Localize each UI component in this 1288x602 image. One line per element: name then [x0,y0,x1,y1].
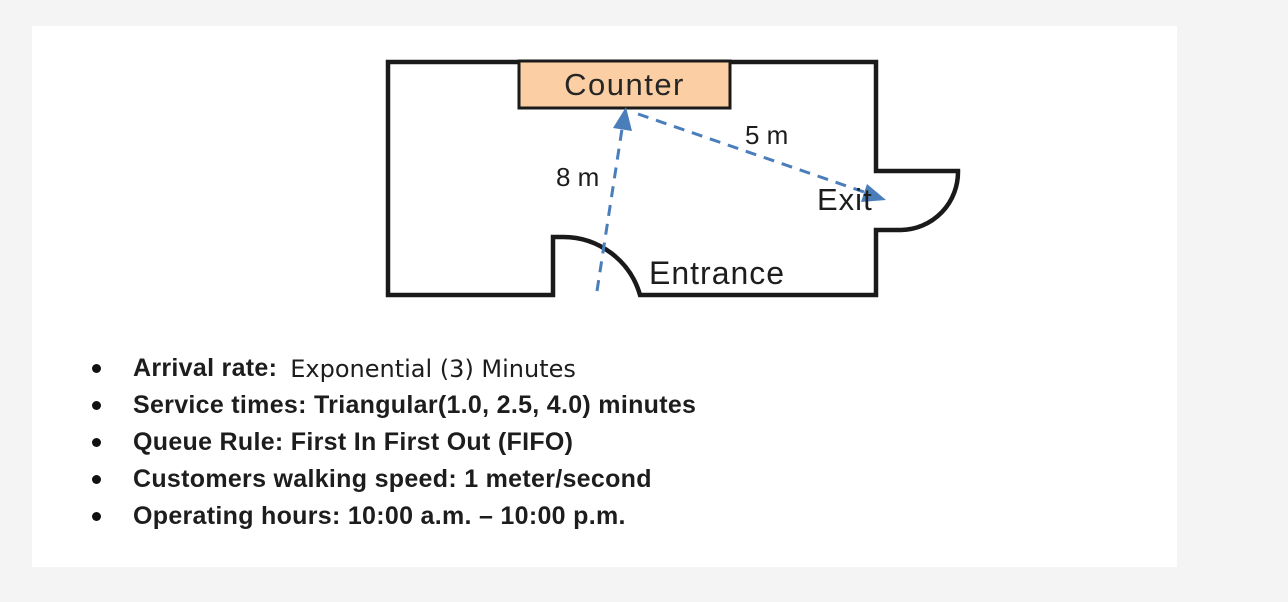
bullet-dot [92,401,101,410]
simulation-specs-list: Arrival rate:Exponential (3) Minutes Ser… [88,350,696,535]
list-item: Operating hours: 10:00 a.m. – 10:00 p.m. [88,498,696,535]
spec-arrival-label: Arrival rate: [133,354,277,382]
distance-8m-label: 8 m [556,164,599,190]
list-item: Customers walking speed: 1 meter/second [88,461,696,498]
arrowhead-at-counter [613,107,632,131]
list-item: Service times: Triangular(1.0, 2.5, 4.0)… [88,387,696,424]
spec-arrival-value: Exponential (3) Minutes [290,355,576,383]
spec-queue-rule: Queue Rule: First In First Out (FIFO) [133,428,573,456]
bullet-dot [92,475,101,484]
list-item: Arrival rate:Exponential (3) Minutes [88,350,696,387]
bullet-dot [92,364,101,373]
counter-label: Counter [519,61,730,108]
list-item: Queue Rule: First In First Out (FIFO) [88,424,696,461]
path-entrance-to-counter [597,129,622,291]
entrance-label: Entrance [649,257,785,289]
bullet-dot [92,512,101,521]
spec-operating-hours: Operating hours: 10:00 a.m. – 10:00 p.m. [133,502,626,530]
spec-walking-speed: Customers walking speed: 1 meter/second [133,465,652,493]
spec-service-times: Service times: Triangular(1.0, 2.5, 4.0)… [133,391,696,419]
bullet-dot [92,438,101,447]
exit-label: Exit [817,184,873,215]
distance-5m-label: 5 m [745,122,788,148]
